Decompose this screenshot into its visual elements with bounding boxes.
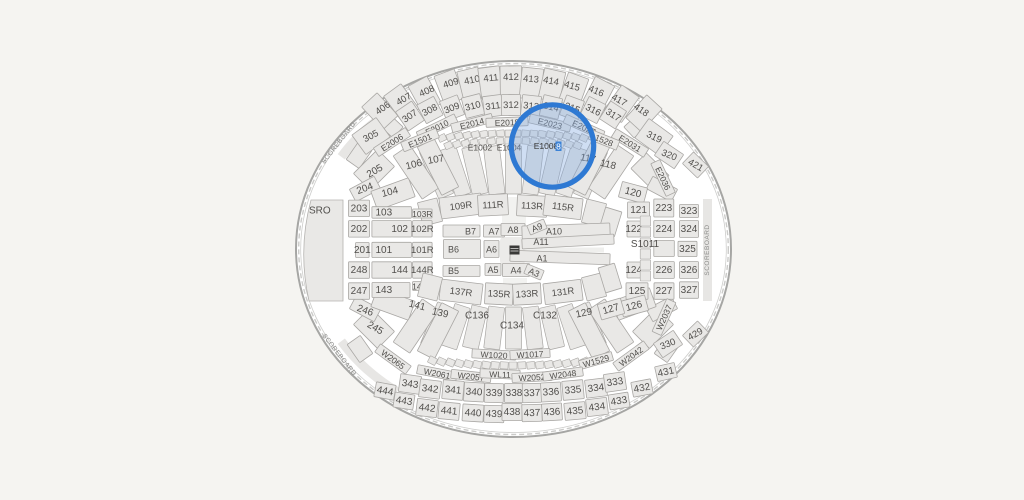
svg-text:102R: 102R — [411, 224, 434, 235]
svg-text:B6: B6 — [448, 245, 459, 255]
svg-text:224: 224 — [656, 224, 673, 235]
svg-text:439: 439 — [485, 409, 502, 421]
svg-text:A10: A10 — [546, 227, 562, 237]
svg-text:334: 334 — [587, 382, 605, 395]
svg-text:338: 338 — [506, 388, 523, 399]
svg-text:442: 442 — [418, 402, 436, 415]
svg-text:327: 327 — [681, 285, 698, 296]
svg-text:438: 438 — [504, 407, 521, 418]
svg-text:412: 412 — [503, 72, 519, 83]
svg-text:143: 143 — [376, 285, 393, 296]
svg-text:340: 340 — [465, 387, 483, 399]
svg-text:SRO: SRO — [309, 206, 331, 217]
svg-text:WL11: WL11 — [489, 369, 511, 380]
svg-text:201: 201 — [354, 245, 371, 256]
svg-text:144: 144 — [391, 265, 408, 276]
svg-text:335: 335 — [564, 384, 582, 396]
svg-text:101R: 101R — [411, 245, 434, 256]
svg-text:203: 203 — [351, 203, 368, 214]
svg-text:440: 440 — [464, 408, 482, 420]
svg-text:435: 435 — [566, 405, 584, 418]
svg-text:SCOREBOARD: SCOREBOARD — [704, 224, 711, 275]
svg-text:413: 413 — [523, 73, 540, 85]
svg-text:A5: A5 — [487, 265, 498, 275]
svg-text:226: 226 — [656, 265, 673, 276]
svg-text:324: 324 — [681, 224, 698, 235]
svg-text:337: 337 — [524, 388, 541, 399]
svg-text:441: 441 — [440, 405, 458, 418]
svg-text:341: 341 — [444, 384, 462, 396]
svg-text:B7: B7 — [465, 227, 476, 237]
svg-text:339: 339 — [485, 388, 502, 400]
svg-text:C134: C134 — [500, 321, 524, 332]
svg-text:A1: A1 — [536, 254, 547, 264]
svg-text:135R: 135R — [487, 288, 510, 300]
svg-text:342: 342 — [421, 383, 439, 396]
svg-text:W2052: W2052 — [518, 372, 546, 383]
svg-text:436: 436 — [543, 407, 561, 419]
svg-text:437: 437 — [524, 408, 541, 419]
svg-text:247: 247 — [351, 286, 368, 297]
svg-text:E1002: E1002 — [468, 143, 493, 153]
svg-text:434: 434 — [588, 401, 606, 414]
svg-text:S1011: S1011 — [631, 239, 660, 250]
svg-text:A6: A6 — [486, 245, 497, 255]
svg-text:A8: A8 — [507, 225, 518, 235]
svg-text:223: 223 — [655, 203, 672, 214]
svg-text:248: 248 — [351, 265, 368, 276]
svg-text:B5: B5 — [448, 266, 459, 276]
svg-text:312: 312 — [503, 100, 519, 111]
svg-text:W1020: W1020 — [480, 349, 508, 360]
svg-text:411: 411 — [483, 72, 499, 85]
svg-text:C136: C136 — [465, 311, 489, 322]
svg-text:103R: 103R — [412, 209, 432, 219]
svg-text:E1008: E1008 — [534, 141, 559, 151]
svg-text:323: 323 — [681, 206, 698, 217]
svg-text:103: 103 — [376, 207, 393, 218]
svg-text:227: 227 — [656, 286, 673, 297]
svg-text:8: 8 — [556, 142, 561, 152]
svg-text:111R: 111R — [482, 199, 504, 211]
svg-text:C132: C132 — [533, 311, 557, 322]
svg-text:133R: 133R — [515, 288, 538, 300]
svg-text:113R: 113R — [521, 200, 544, 212]
svg-text:A11: A11 — [533, 237, 548, 247]
svg-text:121: 121 — [630, 205, 647, 216]
svg-text:311: 311 — [485, 100, 501, 113]
svg-text:326: 326 — [681, 265, 698, 276]
svg-text:A7: A7 — [488, 227, 499, 237]
svg-text:325: 325 — [679, 244, 696, 255]
svg-text:W1017: W1017 — [516, 349, 544, 360]
svg-text:202: 202 — [351, 224, 368, 235]
svg-text:102: 102 — [391, 224, 408, 235]
svg-text:101: 101 — [376, 245, 393, 256]
svg-text:336: 336 — [542, 387, 560, 399]
svg-text:A4: A4 — [510, 266, 521, 276]
